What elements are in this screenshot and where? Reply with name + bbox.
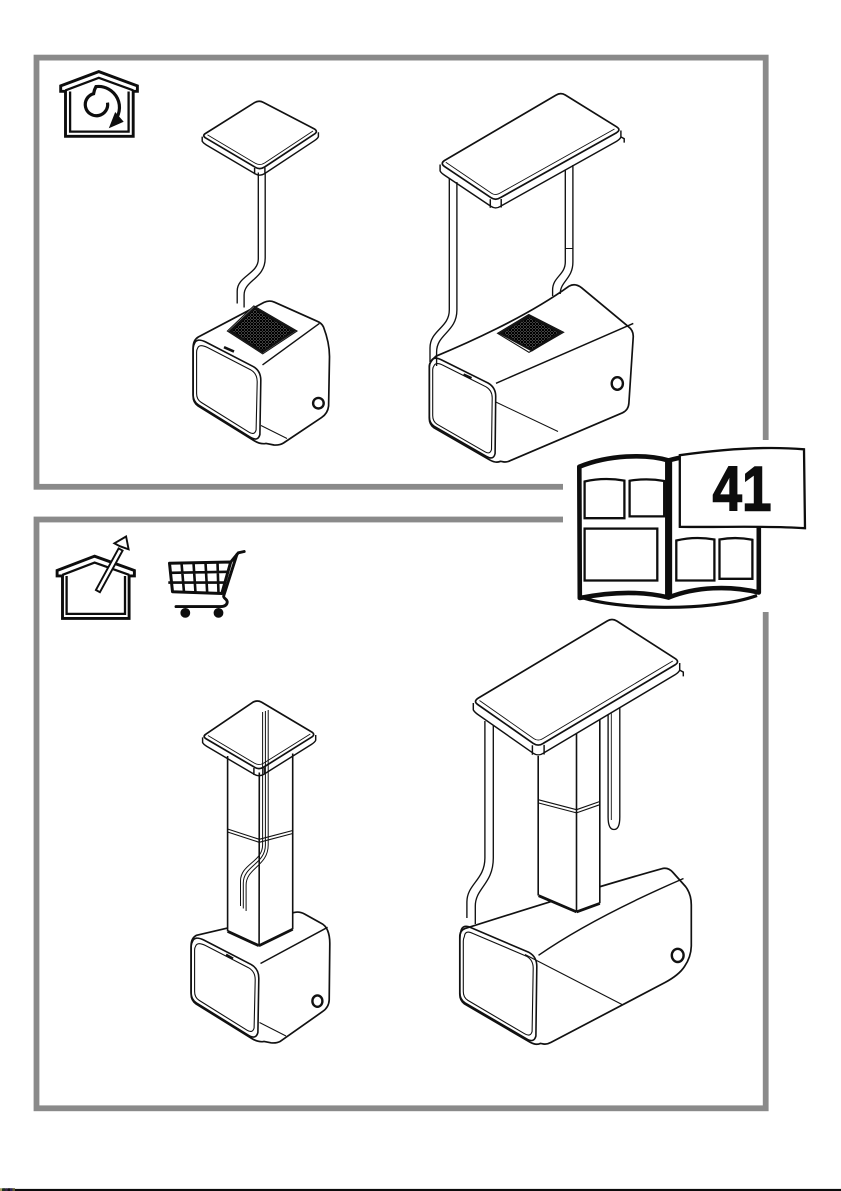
svg-text:41: 41 (713, 455, 772, 525)
